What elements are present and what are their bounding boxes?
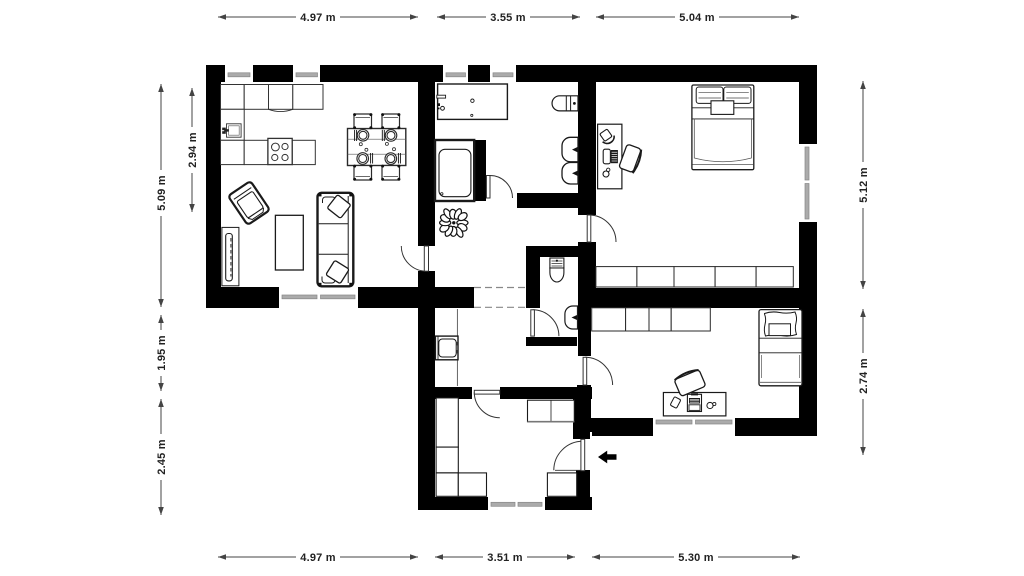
svg-text:3.55 m: 3.55 m xyxy=(490,12,525,24)
svg-text:5.04 m: 5.04 m xyxy=(679,12,714,24)
svg-text:2.94 m: 2.94 m xyxy=(187,132,199,167)
svg-text:2.74 m: 2.74 m xyxy=(858,358,870,393)
svg-text:4.97 m: 4.97 m xyxy=(300,552,335,564)
svg-text:5.30 m: 5.30 m xyxy=(678,552,713,564)
svg-text:5.09 m: 5.09 m xyxy=(156,175,168,210)
svg-text:4.97 m: 4.97 m xyxy=(300,12,335,24)
svg-text:5.12 m: 5.12 m xyxy=(858,167,870,202)
svg-text:1.95 m: 1.95 m xyxy=(156,335,168,370)
svg-text:2.45 m: 2.45 m xyxy=(156,439,168,474)
svg-text:3.51 m: 3.51 m xyxy=(487,552,522,564)
